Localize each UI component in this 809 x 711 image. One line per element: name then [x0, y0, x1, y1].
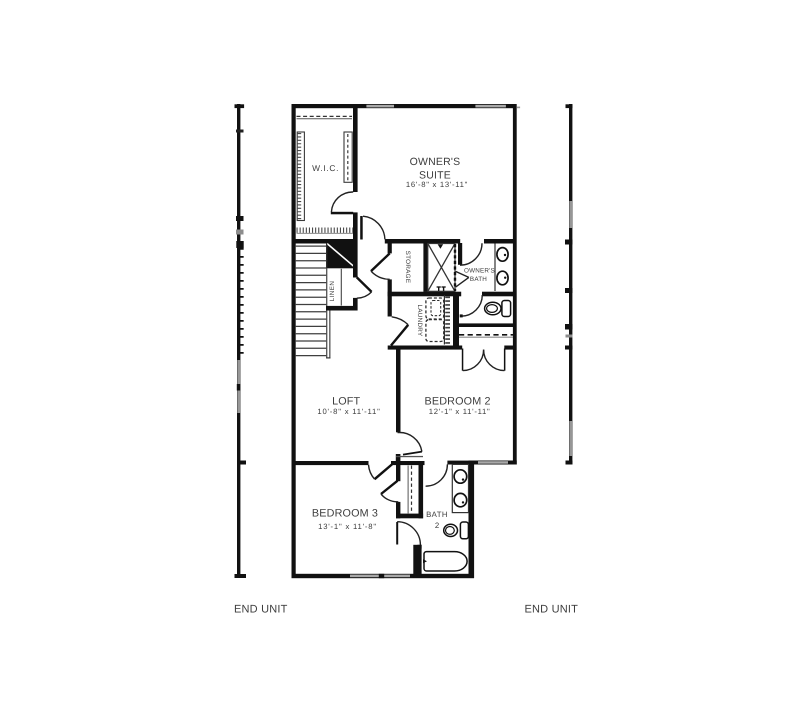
svg-text:END UNIT: END UNIT — [234, 604, 288, 616]
svg-text:12'-1" x 11'-11": 12'-1" x 11'-11" — [429, 407, 491, 416]
svg-text:10'-8" x 11'-11": 10'-8" x 11'-11" — [317, 407, 380, 416]
svg-text:BEDROOM 2: BEDROOM 2 — [425, 396, 491, 408]
svg-text:BATH: BATH — [426, 510, 448, 519]
svg-text:2: 2 — [435, 521, 439, 530]
svg-text:LINEN: LINEN — [329, 281, 336, 302]
svg-text:END UNIT: END UNIT — [525, 604, 579, 616]
svg-text:16'-8" x 13'-11": 16'-8" x 13'-11" — [406, 180, 468, 189]
svg-text:LAUNDRY: LAUNDRY — [416, 304, 423, 337]
svg-text:LOFT: LOFT — [332, 396, 360, 408]
svg-text:STORAGE: STORAGE — [404, 251, 411, 284]
svg-text:W.I.C.: W.I.C. — [312, 163, 339, 173]
svg-text:BATH: BATH — [470, 276, 487, 283]
svg-text:OWNER'S: OWNER'S — [410, 156, 461, 168]
svg-text:13'-1" x 11'-8": 13'-1" x 11'-8" — [318, 522, 377, 531]
svg-text:BEDROOM 3: BEDROOM 3 — [312, 508, 378, 520]
svg-text:OWNER'S: OWNER'S — [464, 267, 495, 274]
